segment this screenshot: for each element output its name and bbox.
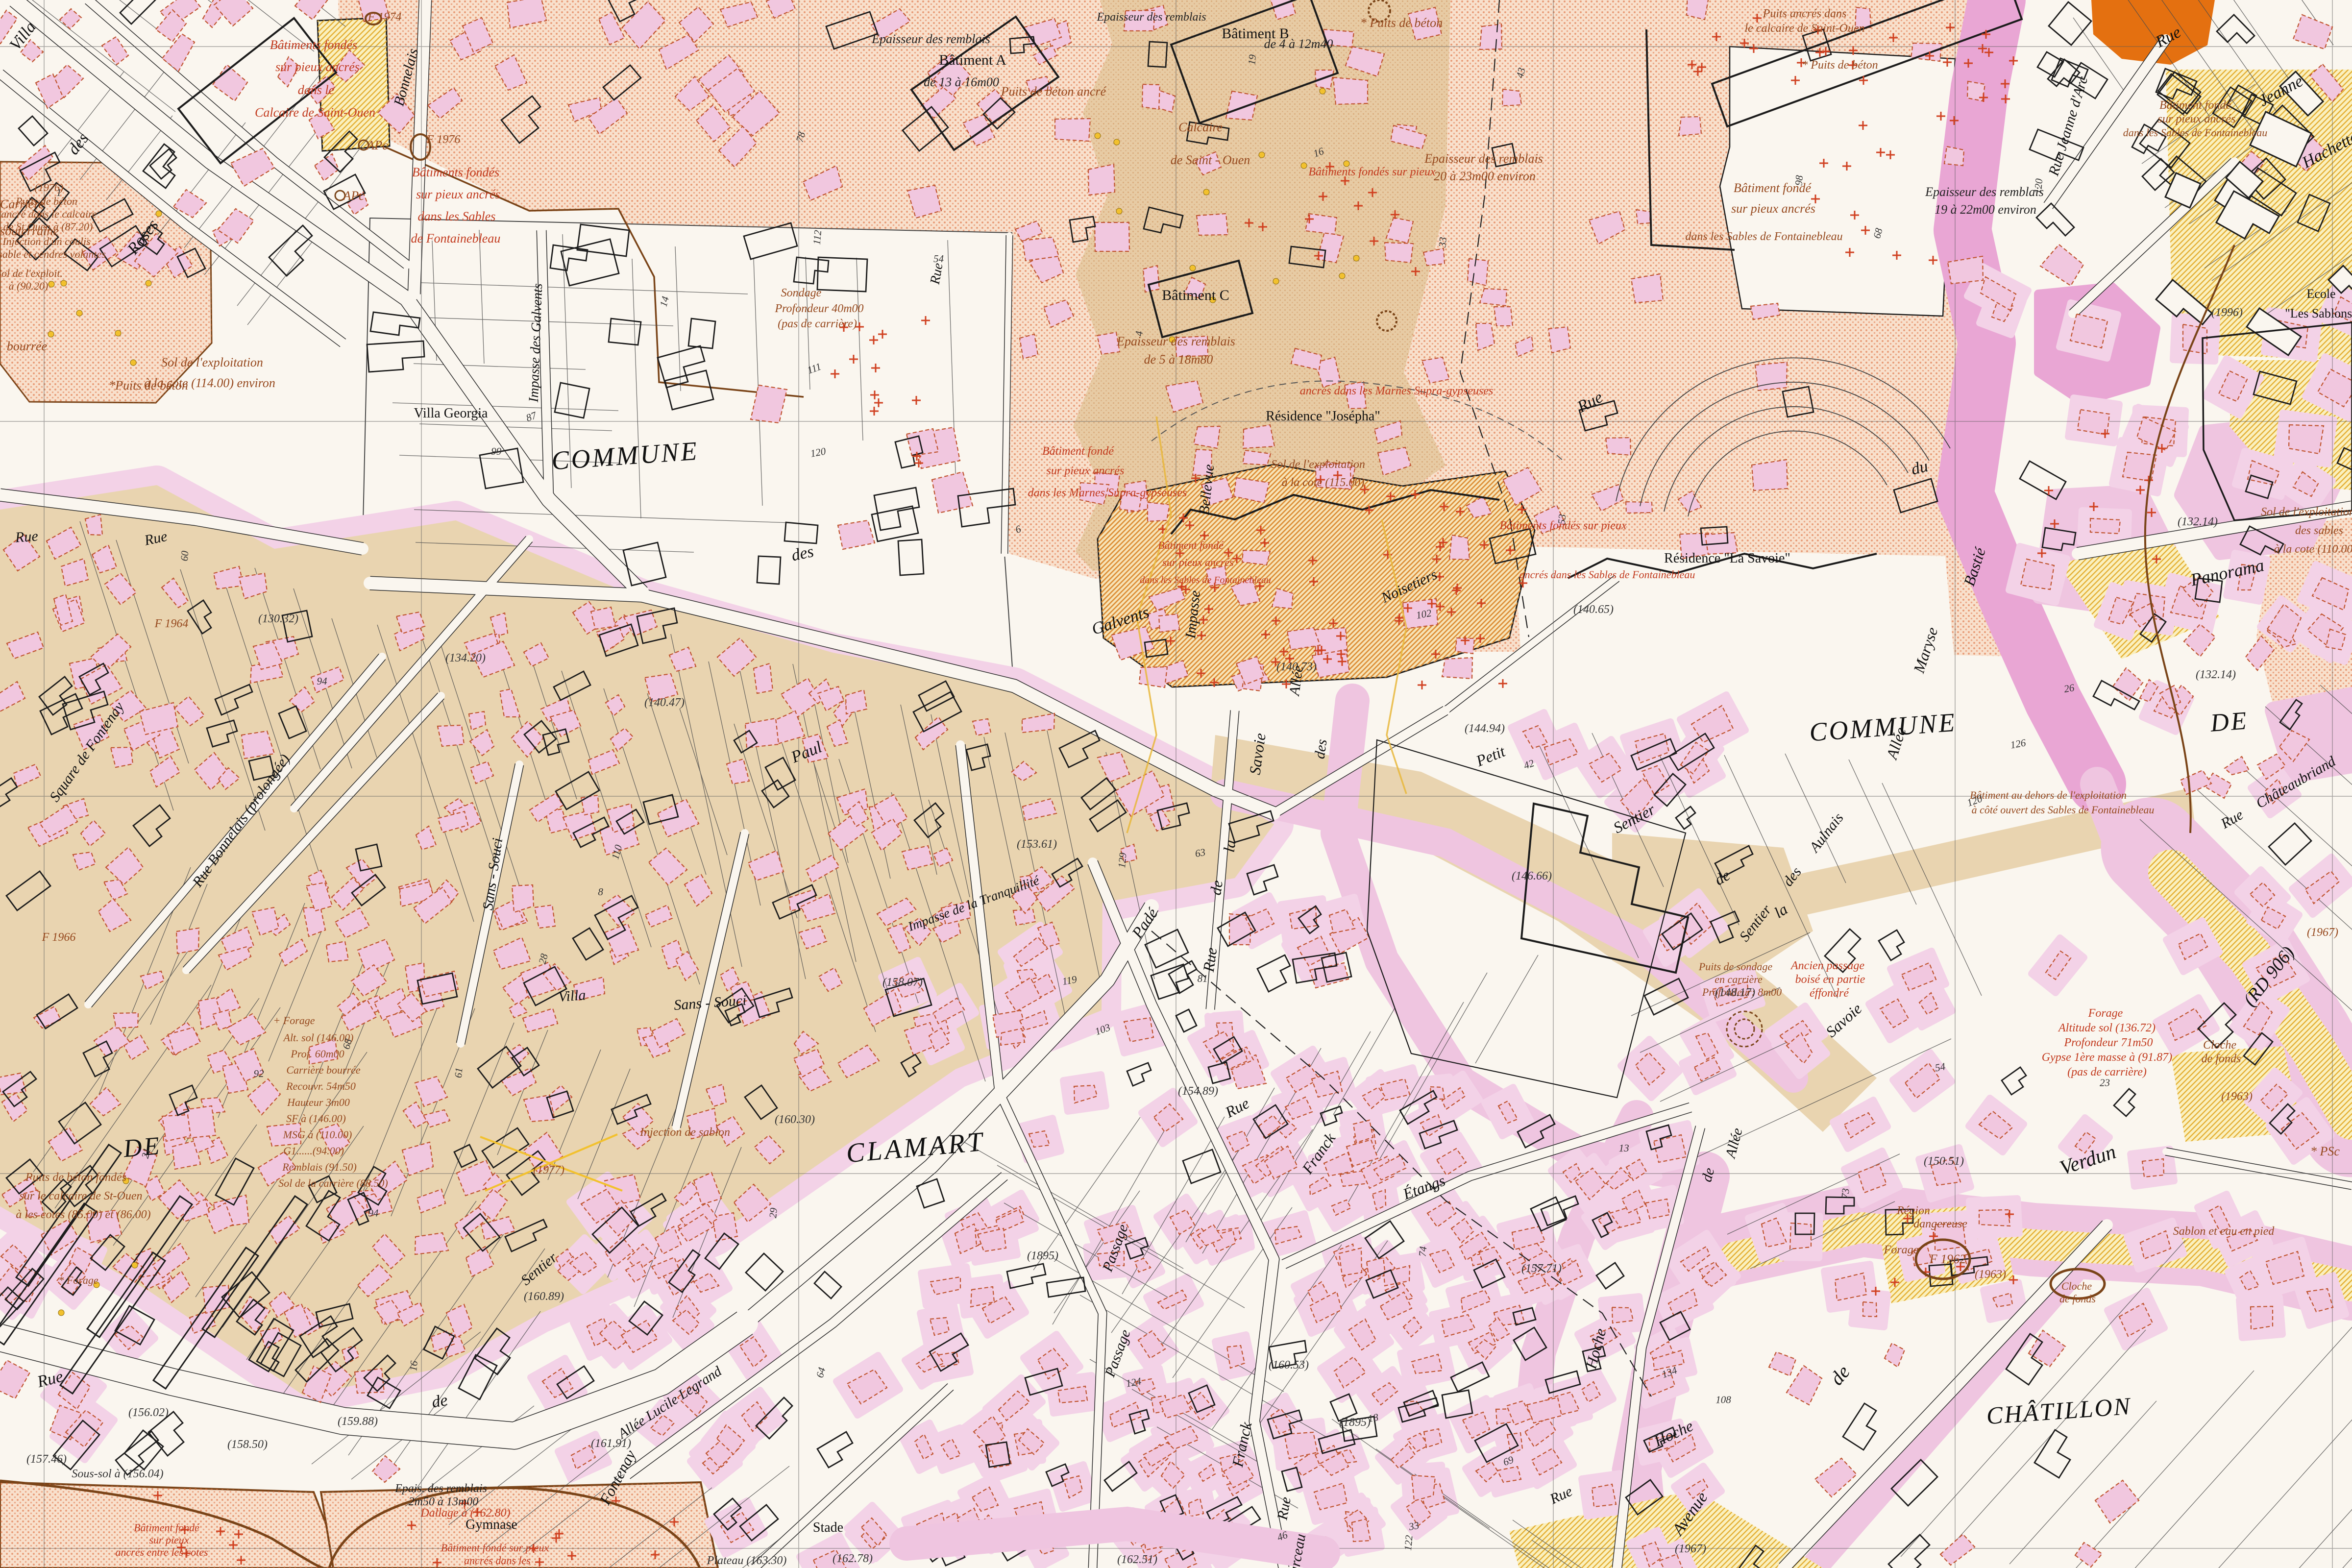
svg-text:Dallage à (162.80): Dallage à (162.80) bbox=[420, 1507, 510, 1519]
svg-text:Rue: Rue bbox=[14, 528, 39, 545]
svg-text:(157.46): (157.46) bbox=[26, 1453, 67, 1466]
svg-text:(154.89): (154.89) bbox=[1178, 1085, 1218, 1098]
svg-text:* PSc: * PSc bbox=[2310, 1144, 2340, 1158]
svg-text:Bâtiment au dehors de l'exploi: Bâtiment au dehors de l'exploitation bbox=[1970, 789, 2127, 801]
svg-text:8: 8 bbox=[598, 886, 603, 898]
svg-text:dans les Marnes Supra-gypseuse: dans les Marnes Supra-gypseuses bbox=[1028, 487, 1187, 499]
svg-text:MSG à (110.00): MSG à (110.00) bbox=[283, 1128, 352, 1141]
svg-text:dangereuse: dangereuse bbox=[1913, 1218, 1967, 1230]
svg-text:Villa: Villa bbox=[558, 987, 586, 1005]
svg-text:(1996): (1996) bbox=[2211, 306, 2243, 319]
svg-text:Rue: Rue bbox=[1200, 946, 1221, 973]
svg-text:F 1964: F 1964 bbox=[154, 617, 189, 630]
svg-text:(1967): (1967) bbox=[2307, 926, 2338, 939]
svg-text:bourrée: bourrée bbox=[7, 339, 47, 353]
svg-text:Epaisseur des remblais: Epaisseur des remblais bbox=[871, 32, 990, 46]
svg-text:Prof. 60m00: Prof. 60m00 bbox=[290, 1048, 344, 1060]
svg-text:Profondeur 71m50: Profondeur 71m50 bbox=[2063, 1036, 2153, 1049]
svg-text:F 1974: F 1974 bbox=[367, 11, 402, 24]
svg-text:(156.02): (156.02) bbox=[128, 1406, 169, 1419]
svg-text:(1963): (1963) bbox=[1975, 1268, 2006, 1281]
svg-text:Puits de béton ancré: Puits de béton ancré bbox=[1001, 84, 1107, 98]
svg-text:(144.94): (144.94) bbox=[1465, 722, 1505, 735]
svg-text:Epaisseur des remblais: Epaisseur des remblais bbox=[1424, 151, 1543, 166]
svg-text:sur pieux ancrés: sur pieux ancrés bbox=[275, 60, 360, 74]
svg-text:ancrés dans les Sables de Font: ancrés dans les Sables de Fontainebleau bbox=[1519, 568, 1695, 581]
svg-text:sur pieux ancrés: sur pieux ancrés bbox=[1047, 465, 1125, 477]
svg-text:Cloche: Cloche bbox=[2203, 1039, 2236, 1052]
svg-text:APc: APc bbox=[366, 138, 388, 152]
svg-text:*Puits de béton: *Puits de béton bbox=[109, 378, 188, 392]
svg-text:(160.89): (160.89) bbox=[524, 1290, 564, 1303]
svg-text:de 5 à 18m80: de 5 à 18m80 bbox=[1144, 352, 1213, 367]
svg-text:(1895): (1895) bbox=[1339, 1416, 1371, 1429]
svg-text:(159.88): (159.88) bbox=[338, 1415, 378, 1428]
svg-text:dans les Sables: dans les Sables bbox=[418, 209, 496, 223]
svg-text:Sol de l'exploitation: Sol de l'exploitation bbox=[161, 355, 263, 369]
svg-text:Puits de béton fondés: Puits de béton fondés bbox=[25, 1171, 126, 1184]
svg-text:98: 98 bbox=[1792, 174, 1805, 186]
svg-text:"Les Sablons": "Les Sablons" bbox=[2285, 306, 2352, 320]
svg-text:ancrés dans les Marnes Supra-g: ancrés dans les Marnes Supra-gypseuses bbox=[1300, 385, 1494, 397]
svg-text:29: 29 bbox=[767, 1207, 780, 1219]
svg-text:120: 120 bbox=[2032, 178, 2045, 195]
svg-text:60: 60 bbox=[178, 550, 191, 562]
svg-text:sur pieux ancrés: sur pieux ancrés bbox=[2158, 113, 2236, 125]
svg-text:(pas de carrière): (pas de carrière) bbox=[778, 318, 857, 330]
svg-text:Remblais (91.50): Remblais (91.50) bbox=[282, 1161, 357, 1173]
svg-text:Ancien passage: Ancien passage bbox=[1790, 959, 1864, 972]
svg-text:à (90.20): à (90.20) bbox=[9, 280, 49, 292]
svg-text:Bâtiment fondé: Bâtiment fondé bbox=[2159, 99, 2231, 112]
svg-text:Cloche: Cloche bbox=[2061, 1280, 2092, 1292]
svg-text:(161.91): (161.91) bbox=[591, 1437, 631, 1450]
svg-text:61: 61 bbox=[452, 1067, 465, 1078]
svg-text:2m50 à 13m00: 2m50 à 13m00 bbox=[409, 1495, 479, 1508]
svg-text:54: 54 bbox=[933, 253, 944, 265]
svg-text:Puits ancrés dans: Puits ancrés dans bbox=[1763, 7, 1847, 20]
svg-text:sur pieux: sur pieux bbox=[149, 1534, 189, 1546]
svg-text:112: 112 bbox=[811, 229, 824, 245]
svg-text:(148.17): (148.17) bbox=[1715, 986, 1755, 999]
svg-text:dans le: dans le bbox=[298, 83, 334, 97]
svg-text:Résidence "Josépha": Résidence "Josépha" bbox=[1266, 409, 1380, 424]
svg-text:de fonds: de fonds bbox=[2059, 1293, 2096, 1305]
svg-text:Bâtiment A: Bâtiment A bbox=[939, 52, 1006, 68]
svg-text:à les cotes (85.00) et (86.00): à les cotes (85.00) et (86.00) bbox=[16, 1208, 150, 1221]
svg-text:Epaisseur des remblais: Epaisseur des remblais bbox=[1096, 11, 1206, 24]
svg-text:Bâtiments fondés sur pieux: Bâtiments fondés sur pieux bbox=[1308, 166, 1436, 178]
svg-text:122: 122 bbox=[1402, 1535, 1415, 1551]
svg-text:(1977): (1977) bbox=[533, 1164, 564, 1176]
svg-text:73: 73 bbox=[1839, 1188, 1852, 1199]
svg-text:en carrière: en carrière bbox=[1715, 973, 1763, 985]
svg-text:(134.20): (134.20) bbox=[445, 652, 486, 664]
svg-text:Plateau (163.30): Plateau (163.30) bbox=[707, 1554, 787, 1567]
svg-text:23: 23 bbox=[2100, 1077, 2110, 1089]
svg-text:33: 33 bbox=[1436, 237, 1449, 248]
svg-text:53: 53 bbox=[1556, 514, 1568, 525]
svg-text:Sol de l'exploitation: Sol de l'exploitation bbox=[2261, 506, 2352, 518]
svg-text:(1967): (1967) bbox=[1675, 1543, 1706, 1555]
svg-text:(130.32): (130.32) bbox=[258, 612, 298, 625]
svg-text:99: 99 bbox=[491, 445, 502, 457]
svg-text:Carrière bourrée: Carrière bourrée bbox=[286, 1064, 361, 1076]
svg-text:(1963): (1963) bbox=[2221, 1090, 2253, 1103]
svg-text:dans les Sables de Fontaineble: dans les Sables de Fontainebleau bbox=[1685, 230, 1842, 243]
svg-text:dans les Sables de Fontaineble: dans les Sables de Fontainebleau bbox=[2123, 126, 2268, 139]
svg-text:Injection d'un coulis: Injection d'un coulis bbox=[2, 235, 90, 247]
svg-text:Ecole: Ecole bbox=[2306, 287, 2335, 301]
svg-text:Forage: Forage bbox=[2088, 1007, 2123, 1020]
svg-text:APc: APc bbox=[342, 189, 365, 203]
svg-text:(160.53): (160.53) bbox=[1269, 1359, 1309, 1372]
svg-text:(146.66): (146.66) bbox=[1512, 870, 1552, 882]
svg-text:Epais. des remblais: Epais. des remblais bbox=[394, 1482, 487, 1495]
svg-text:F 1962: F 1962 bbox=[1929, 1252, 1966, 1266]
svg-text:Puits de béton: Puits de béton bbox=[15, 195, 77, 207]
svg-text:20 à 23m00 environ: 20 à 23m00 environ bbox=[1434, 169, 1536, 183]
svg-text:Sol de l'exploit.: Sol de l'exploit. bbox=[0, 267, 63, 279]
svg-text:74: 74 bbox=[1417, 1246, 1429, 1257]
svg-text:19: 19 bbox=[1246, 54, 1258, 66]
svg-text:Forage: Forage bbox=[1884, 1244, 1919, 1256]
svg-text:Injection de sablon: Injection de sablon bbox=[639, 1126, 730, 1139]
svg-text:(162.51): (162.51) bbox=[1117, 1553, 1157, 1566]
svg-text:Bâtiment C: Bâtiment C bbox=[1162, 287, 1229, 303]
svg-text:16: 16 bbox=[407, 1360, 420, 1372]
svg-text:13: 13 bbox=[1619, 1142, 1629, 1154]
svg-text:(157.71): (157.71) bbox=[1521, 1262, 1562, 1275]
svg-text:à la cote (115.00): à la cote (115.00) bbox=[1282, 476, 1365, 489]
svg-text:à côté ouvert des Sables de Fo: à côté ouvert des Sables de Fontaineblea… bbox=[1972, 804, 2155, 816]
svg-text:Bâtiments fondés: Bâtiments fondés bbox=[270, 38, 357, 52]
svg-text:(140.47): (140.47) bbox=[644, 696, 685, 709]
svg-text:Région: Région bbox=[1896, 1204, 1930, 1217]
svg-text:(158.50): (158.50) bbox=[227, 1438, 268, 1451]
svg-text:boisé en partie: boisé en partie bbox=[1795, 973, 1865, 986]
svg-text:(140.65): (140.65) bbox=[1573, 603, 1614, 616]
svg-text:Calcaire de Saint-Ouen: Calcaire de Saint-Ouen bbox=[255, 105, 375, 120]
svg-text:Recouvr. 54m50: Recouvr. 54m50 bbox=[286, 1080, 356, 1092]
svg-text:(162.78): (162.78) bbox=[833, 1552, 873, 1565]
svg-text:de 4 à 12m40: de 4 à 12m40 bbox=[1264, 37, 1333, 51]
svg-text:Sous-sol à (156.04): Sous-sol à (156.04) bbox=[72, 1468, 163, 1480]
svg-text:33: 33 bbox=[1407, 1519, 1420, 1533]
svg-text:de: de bbox=[1206, 879, 1226, 896]
svg-text:Sol de la carrière (88.50): Sol de la carrière (88.50) bbox=[278, 1177, 388, 1189]
svg-text:Bâtiment fondé: Bâtiment fondé bbox=[134, 1521, 200, 1534]
svg-text:de: de bbox=[430, 1391, 449, 1412]
svg-text:* Puits de béton: * Puits de béton bbox=[1802, 59, 1878, 72]
svg-text:éffondré: éffondré bbox=[1810, 987, 1849, 1000]
svg-text:Epaisseur des remblais: Epaisseur des remblais bbox=[1116, 334, 1235, 348]
svg-text:Stade: Stade bbox=[813, 1520, 843, 1535]
svg-text:DE: DE bbox=[2209, 707, 2249, 737]
svg-text:de Saint - Ouen: de Saint - Ouen bbox=[1171, 153, 1250, 167]
svg-text:* Forage: * Forage bbox=[58, 1274, 98, 1286]
svg-text:(1895): (1895) bbox=[1027, 1249, 1058, 1262]
svg-text:ancrés entre les cotes: ancrés entre les cotes bbox=[115, 1546, 208, 1558]
svg-text:Résidence "La Savoie": Résidence "La Savoie" bbox=[1664, 551, 1790, 566]
svg-text:ancré dans le calcaire: ancré dans le calcaire bbox=[1, 208, 97, 220]
svg-text:(160.30): (160.30) bbox=[775, 1113, 815, 1126]
svg-text:le calcaire de Saint-Ouen: le calcaire de Saint-Ouen bbox=[1744, 22, 1864, 35]
svg-text:des: des bbox=[1311, 738, 1330, 760]
svg-text:(132.14): (132.14) bbox=[2178, 515, 2218, 528]
svg-text:Sol de l'exploitation: Sol de l'exploitation bbox=[1271, 458, 1365, 471]
svg-text:F 1966: F 1966 bbox=[42, 931, 76, 944]
svg-text:à la cote (110.00): à la cote (110.00) bbox=[2274, 543, 2352, 556]
svg-text:Hauteur 3m00: Hauteur 3m00 bbox=[287, 1096, 350, 1108]
svg-text:Villa Georgia: Villa Georgia bbox=[414, 406, 489, 421]
svg-text:Bâtiment fondé sur pieux: Bâtiment fondé sur pieux bbox=[441, 1542, 549, 1554]
svg-text:(153.61): (153.61) bbox=[1017, 838, 1057, 851]
svg-text:81: 81 bbox=[1198, 973, 1208, 984]
svg-text:sur pieux ancrés: sur pieux ancrés bbox=[1162, 556, 1233, 568]
svg-text:SF à (146.00): SF à (146.00) bbox=[286, 1112, 346, 1125]
svg-text:19 à 22m00 environ: 19 à 22m00 environ bbox=[1935, 202, 2036, 217]
svg-text:(158.07): (158.07) bbox=[882, 976, 923, 989]
svg-text:Sablon et eau en pied: Sablon et eau en pied bbox=[2173, 1225, 2275, 1238]
svg-text:dans les Sables de Fontaineble: dans les Sables de Fontainebleau bbox=[1140, 575, 1271, 586]
svg-text:1: 1 bbox=[56, 187, 62, 198]
svg-text:de sable et cendres volantes: de sable et cendres volantes bbox=[0, 248, 106, 260]
svg-text:(150.51): (150.51) bbox=[1924, 1155, 1964, 1168]
svg-text:sur pieux ancrés: sur pieux ancrés bbox=[416, 187, 500, 201]
svg-text:92: 92 bbox=[254, 1068, 265, 1079]
svg-text:Calcaire: Calcaire bbox=[1178, 120, 1223, 134]
svg-text:de fonds: de fonds bbox=[2202, 1053, 2241, 1065]
svg-text:sur pieux ancrés: sur pieux ancrés bbox=[1731, 201, 1815, 216]
svg-text:ancrés dans les: ancrés dans les bbox=[464, 1554, 531, 1567]
svg-text:sur le calcaire de St-Ouen: sur le calcaire de St-Ouen bbox=[19, 1190, 142, 1202]
svg-text:94: 94 bbox=[368, 1207, 379, 1219]
svg-text:la: la bbox=[1220, 839, 1239, 854]
svg-text:Altitude sol (136.72): Altitude sol (136.72) bbox=[2058, 1022, 2156, 1034]
svg-text:Gypse 1ère masse à (91.87): Gypse 1ère masse à (91.87) bbox=[2042, 1051, 2172, 1064]
svg-text:(132.14): (132.14) bbox=[2196, 668, 2236, 681]
svg-text:Profondeur 40m00: Profondeur 40m00 bbox=[774, 302, 863, 315]
svg-text:Bâtiments fondés: Bâtiments fondés bbox=[412, 165, 499, 179]
svg-text:de St Ouen à (87.20): de St Ouen à (87.20) bbox=[3, 220, 93, 233]
svg-text:des sables: des sables bbox=[2295, 524, 2343, 537]
svg-text:Bâtiment fondé: Bâtiment fondé bbox=[1158, 539, 1224, 551]
svg-text:de 13 à 16m00: de 13 à 16m00 bbox=[924, 75, 999, 89]
svg-text:Sondage: Sondage bbox=[781, 287, 822, 299]
svg-text:* Puits de béton: * Puits de béton bbox=[1360, 16, 1443, 30]
svg-text:de Fontainebleau: de Fontainebleau bbox=[411, 231, 501, 245]
svg-text:94: 94 bbox=[317, 675, 328, 687]
svg-text:G1......(94.00): G1......(94.00) bbox=[283, 1145, 344, 1157]
svg-text:108: 108 bbox=[1715, 1394, 1731, 1406]
svg-text:Bâtiment fondé: Bâtiment fondé bbox=[1042, 445, 1114, 458]
svg-text:(140.73): (140.73) bbox=[1276, 661, 1317, 673]
svg-text:129: 129 bbox=[1116, 852, 1129, 868]
svg-text:Puits de sondage: Puits de sondage bbox=[1698, 960, 1773, 973]
svg-text:F 1976: F 1976 bbox=[426, 133, 461, 146]
svg-text:63: 63 bbox=[1194, 846, 1206, 859]
svg-text:Epaisseur des remblais: Epaisseur des remblais bbox=[1925, 185, 2044, 199]
svg-text:+ Forage: + Forage bbox=[273, 1014, 315, 1027]
